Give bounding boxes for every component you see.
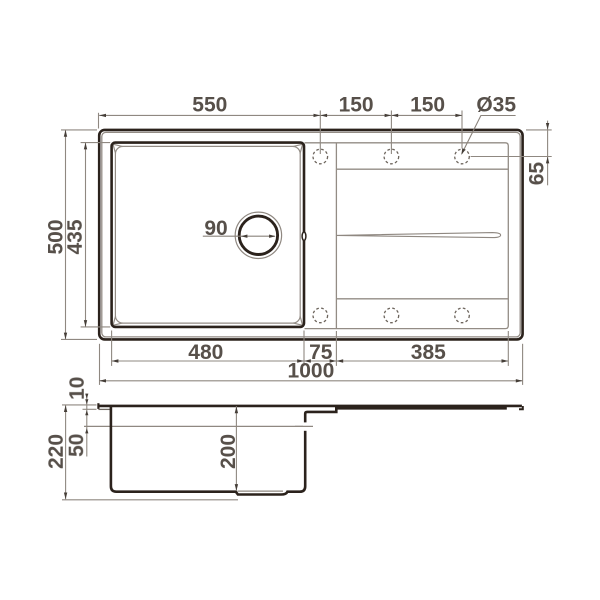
svg-text:10: 10: [66, 377, 89, 400]
svg-text:Ø35: Ø35: [476, 94, 516, 117]
svg-text:150: 150: [410, 94, 445, 117]
svg-text:435: 435: [64, 219, 87, 254]
svg-text:200: 200: [217, 434, 240, 469]
svg-text:480: 480: [188, 341, 223, 364]
svg-text:550: 550: [192, 94, 227, 117]
svg-text:65: 65: [526, 162, 549, 186]
svg-text:150: 150: [339, 94, 374, 117]
svg-text:385: 385: [411, 341, 446, 364]
svg-text:90: 90: [204, 217, 227, 240]
svg-text:1000: 1000: [288, 359, 335, 382]
svg-text:50: 50: [65, 434, 88, 457]
